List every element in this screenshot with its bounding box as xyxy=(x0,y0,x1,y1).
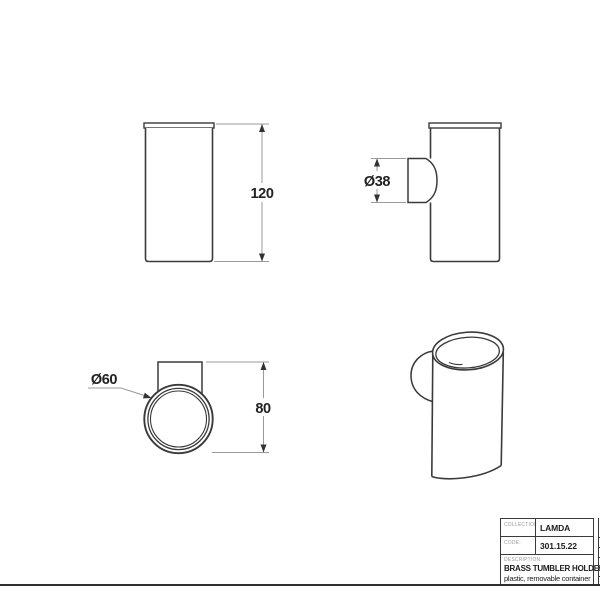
title-block-code-row: CODE: 301.15.22 xyxy=(501,537,593,555)
collection-label: COLLECTION: xyxy=(501,519,536,536)
description-label: DESCRIPTION: xyxy=(504,557,593,563)
technical-drawing: 120 Ø38 Ø60 xyxy=(0,0,600,600)
top-view-depth-dimension: 80 xyxy=(206,362,277,453)
code-label: CODE: xyxy=(501,537,536,554)
dim-label-d60: Ø60 xyxy=(91,372,118,388)
arrow-down-icon xyxy=(261,445,267,453)
title-block-next-column-border xyxy=(598,518,599,584)
drawing-sheet: 120 Ø38 Ø60 xyxy=(0,0,600,600)
title-block-description-row: DESCRIPTION: BRASS TUMBLER HOLDER plasti… xyxy=(501,555,593,583)
side-view-rim xyxy=(429,123,501,128)
arrow-up-icon xyxy=(261,362,267,370)
top-view-diameter-callout: Ø60 xyxy=(88,372,152,401)
front-view xyxy=(144,123,214,262)
description-line1: BRASS TUMBLER HOLDER xyxy=(504,564,593,574)
arrow-down-icon xyxy=(374,195,380,203)
top-view-outer-circle xyxy=(144,385,212,453)
front-view-body xyxy=(146,128,213,262)
side-view-bracket-dimension: Ø38 xyxy=(361,159,406,203)
dim-label-d38: Ø38 xyxy=(364,174,391,190)
sheet-bottom-frame-line xyxy=(0,584,600,586)
description-line2: plastic, removable container xyxy=(504,574,593,583)
title-block: COLLECTION: LAMDA CODE: 301.15.22 DESCRI… xyxy=(500,518,594,584)
code-value: 301.15.22 xyxy=(536,537,593,554)
perspective-bracket xyxy=(411,351,434,402)
arrow-up-icon xyxy=(259,124,265,132)
title-block-collection-row: COLLECTION: LAMDA xyxy=(501,519,593,537)
side-view-body-fill xyxy=(431,128,500,262)
arrow-up-icon xyxy=(374,159,380,167)
side-view xyxy=(408,123,501,262)
arrow-down-icon xyxy=(259,254,265,262)
front-view-height-dimension: 120 xyxy=(214,124,277,262)
dim-label-80: 80 xyxy=(255,401,271,417)
perspective-view xyxy=(411,330,505,479)
top-view xyxy=(144,362,212,453)
dim-label-120: 120 xyxy=(251,186,274,202)
leader-line xyxy=(88,388,149,397)
perspective-body-fill xyxy=(432,352,504,479)
front-view-rim xyxy=(144,123,214,128)
side-view-wall-bracket xyxy=(408,159,437,203)
collection-value: LAMDA xyxy=(536,519,593,536)
